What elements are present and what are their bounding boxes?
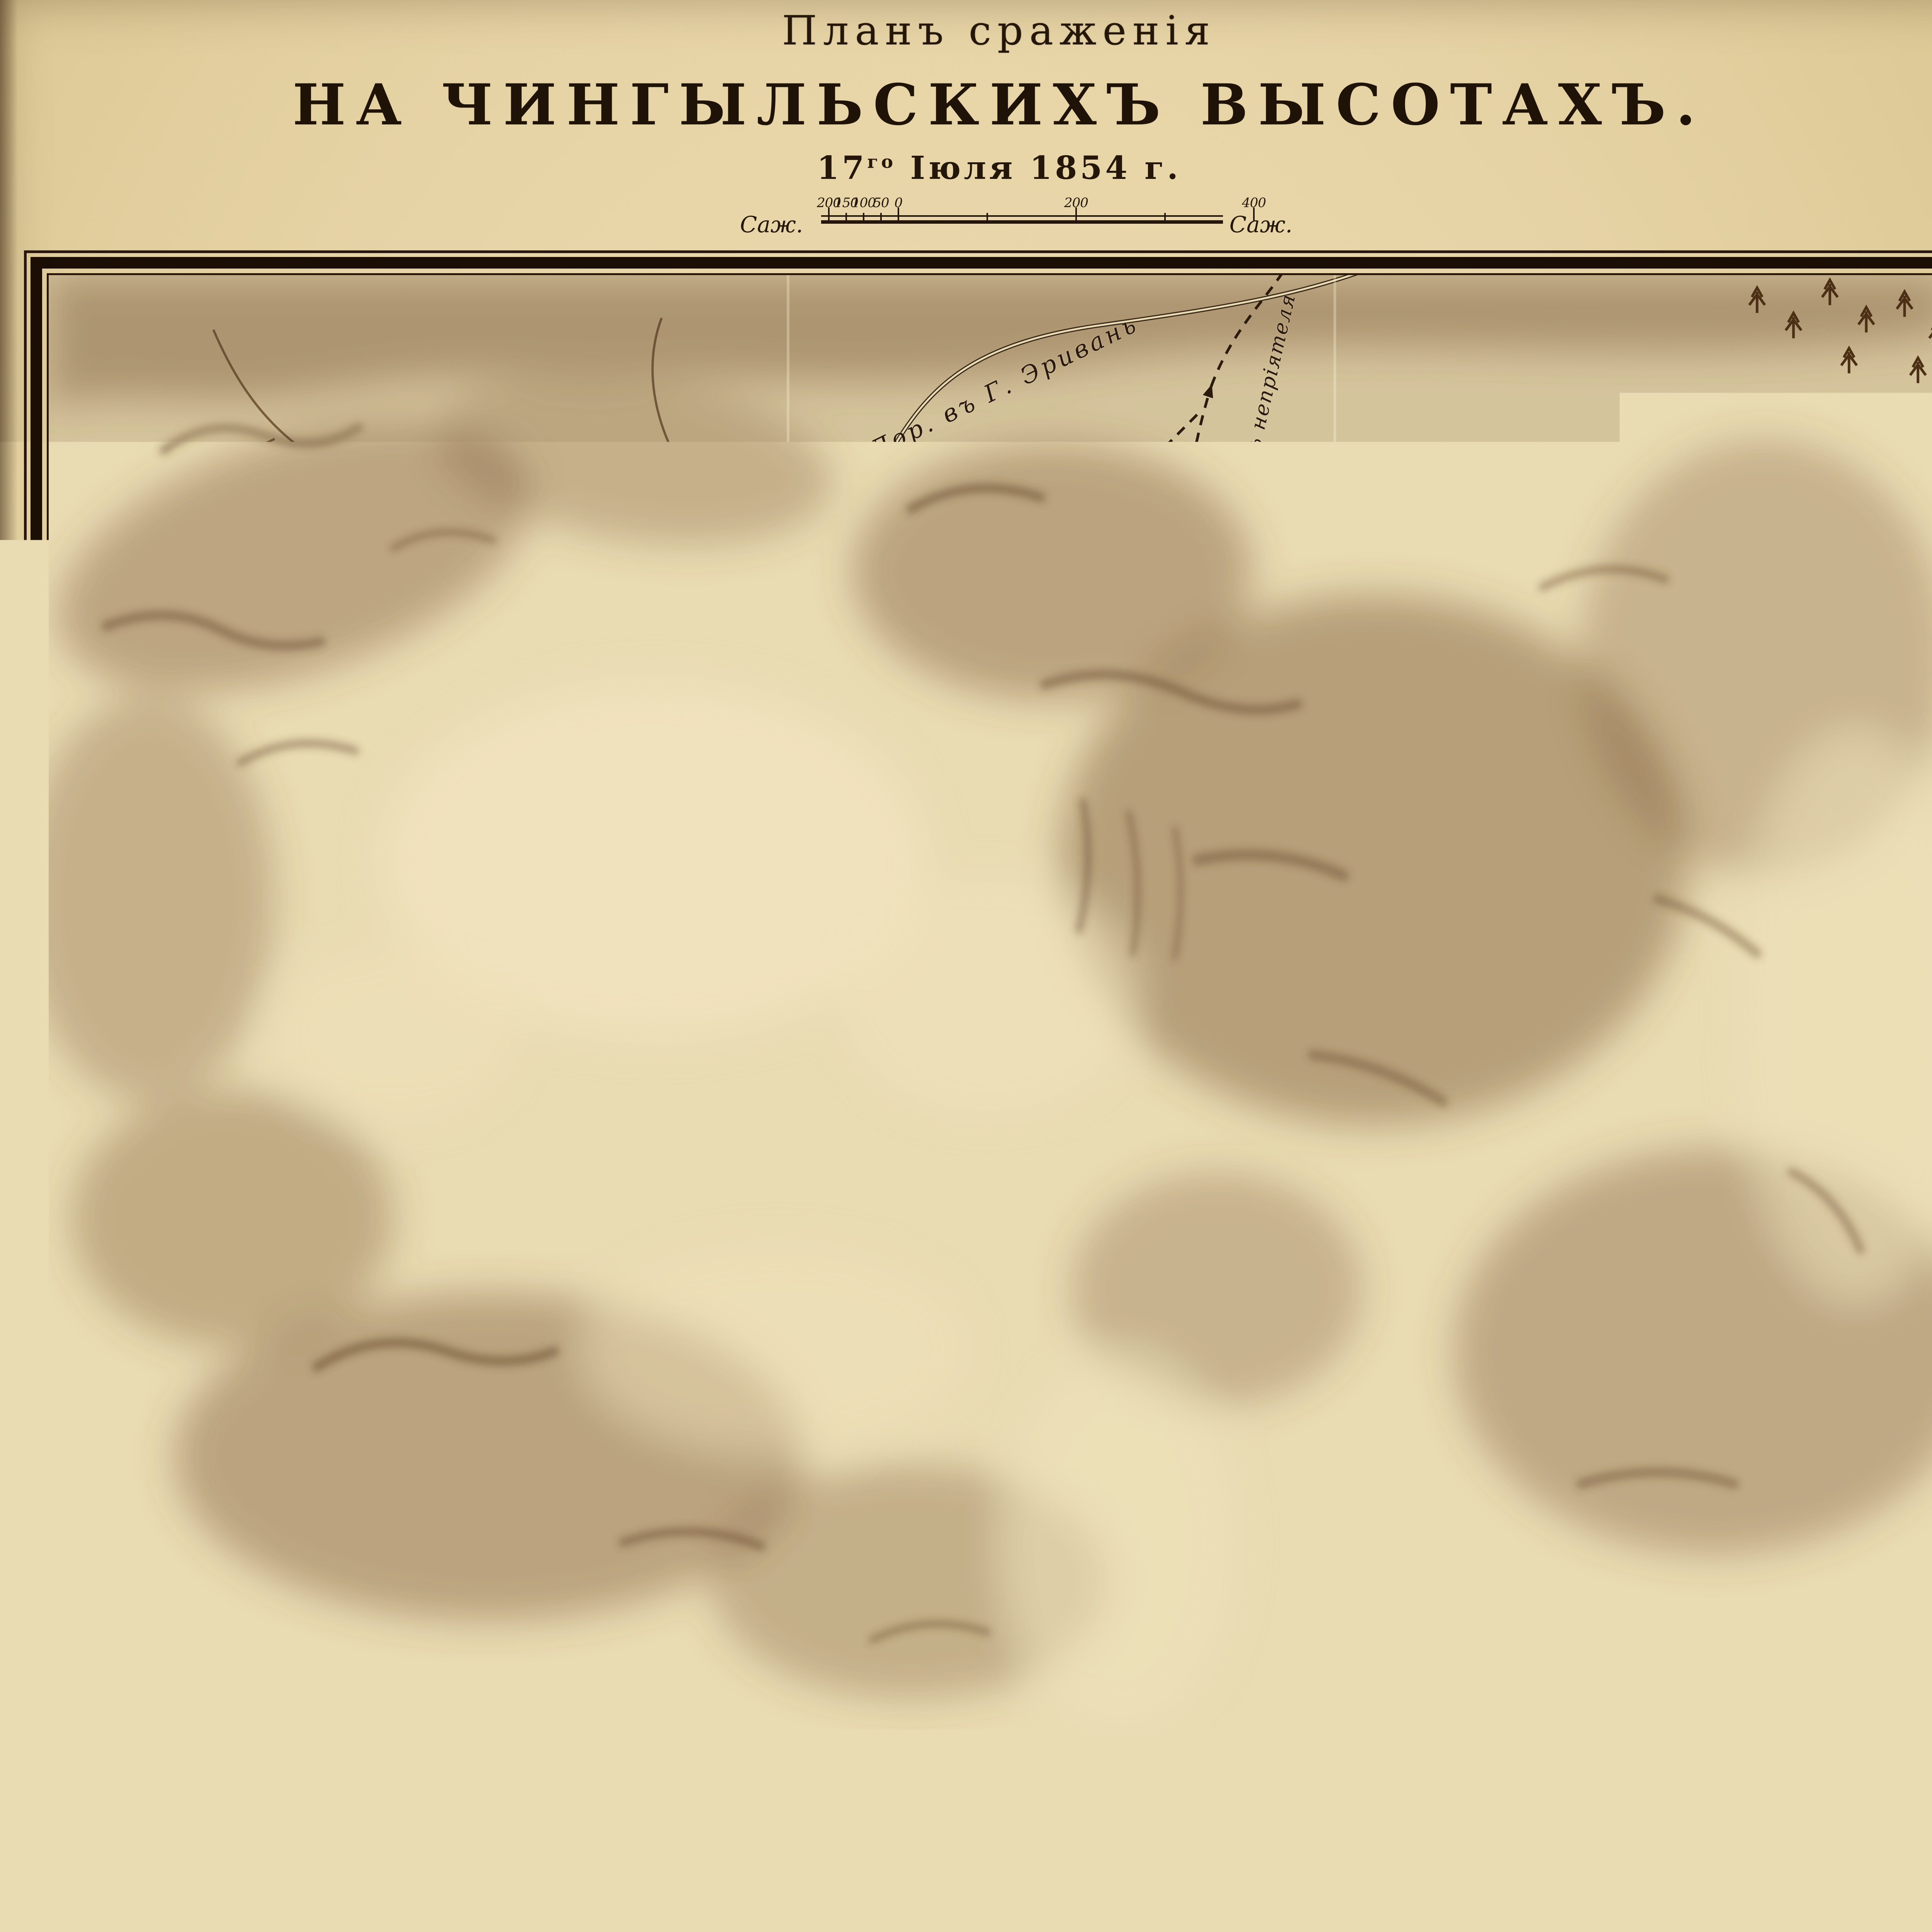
militia-dot	[707, 1168, 716, 1177]
legend-num: № 3	[572, 1886, 630, 1911]
militia-dot	[579, 1140, 588, 1149]
scale-unit-left: Саж.	[740, 211, 803, 238]
militia-dot	[857, 745, 864, 752]
militia-dot	[484, 1160, 492, 1167]
militia-dot	[847, 755, 855, 763]
militia-dot	[1348, 1921, 1357, 1929]
legend-dash	[1197, 1929, 1319, 1931]
militia-dot	[1361, 1929, 1368, 1932]
militia-dot	[504, 1162, 515, 1172]
militia-dot	[615, 1093, 623, 1100]
militia-dot	[733, 1113, 740, 1120]
militia-dot	[584, 1115, 590, 1121]
scale-tick	[863, 213, 864, 221]
militia-dot	[781, 797, 788, 803]
militia-dot	[883, 798, 887, 803]
militia-dot	[825, 812, 831, 817]
militia-dot	[655, 1179, 663, 1187]
scale-tick	[898, 207, 899, 221]
militia-dot	[1373, 1925, 1382, 1932]
militia-dot	[574, 1184, 582, 1192]
militia-dot	[872, 759, 878, 764]
militia-dot	[841, 878, 849, 885]
militia-dot	[500, 1189, 505, 1194]
militia-dot	[860, 737, 866, 743]
militia-dot	[829, 761, 839, 771]
militia-dot	[797, 1019, 802, 1023]
militia-dot	[755, 934, 764, 942]
militia-dot	[1376, 1905, 1383, 1912]
militia-dot	[770, 803, 780, 811]
militia-dot	[536, 1116, 547, 1125]
militia-dot	[488, 1175, 498, 1184]
militia-dot	[1356, 1917, 1366, 1926]
scale-tick	[1164, 213, 1166, 221]
scale-tick	[845, 213, 847, 221]
legend-dash	[876, 1929, 998, 1931]
militia-dot	[545, 1132, 556, 1141]
militia-dot	[724, 1119, 731, 1126]
militia-dot	[908, 773, 915, 780]
militia-dot	[1343, 1912, 1352, 1921]
militia-dot	[560, 1107, 568, 1114]
scale-unit-right: Саж.	[1230, 211, 1293, 238]
legend-regiment: Батал. Пѣхотн. Его Свѣтл. Кн. Варш. пол.	[925, 1825, 1347, 1845]
militia-dot	[741, 1107, 749, 1115]
militia-dot	[608, 1113, 618, 1122]
militia-dot	[776, 995, 782, 1001]
militia-dot	[896, 772, 900, 777]
militia-dot	[858, 789, 867, 798]
militia-dot	[477, 1134, 486, 1143]
militia-dot	[899, 787, 903, 791]
map-date: 17го Іюля 1854 г.	[0, 150, 1932, 187]
legend-dash	[1266, 1866, 1319, 1868]
militia-dot	[619, 1190, 624, 1195]
militia-dot	[890, 743, 898, 750]
militia-dot	[831, 929, 838, 937]
militia-dot	[1396, 1914, 1407, 1924]
militia-dot	[700, 1151, 710, 1160]
legend-regiment: Мингр. егерскаго полка	[1035, 1856, 1260, 1877]
militia-dot	[621, 1074, 628, 1080]
militia-dot	[892, 766, 900, 773]
scale-tick	[986, 213, 988, 221]
militia-dot	[1366, 1918, 1373, 1925]
legend-dash	[957, 1898, 1076, 1900]
legend-unit: милиція	[1426, 1918, 1592, 1932]
legend-name: Наступленіе	[630, 1855, 869, 1878]
militia-dot	[615, 1133, 623, 1140]
militia-dot	[571, 1164, 582, 1174]
militia-dot	[609, 1180, 613, 1185]
date-rest: Іюля 1854 г.	[910, 150, 1181, 187]
militia-dot	[769, 793, 779, 802]
legend-letter: b. 1й	[935, 1855, 979, 1878]
militia-dot	[568, 1198, 579, 1208]
militia-dot	[499, 1102, 509, 1111]
militia-dot	[837, 809, 847, 818]
militia-dot	[625, 1170, 633, 1177]
militia-dot	[901, 747, 909, 754]
militia-dot	[833, 841, 844, 851]
legend: Изъясненіе № 1 Мѣсто отдыха a. 1й Батал.…	[0, 1762, 1932, 1932]
militia-dot	[885, 801, 895, 810]
legend-letter: c. 5й	[1082, 1887, 1124, 1910]
militia-dot	[587, 1160, 592, 1165]
militia-dot	[773, 1005, 781, 1012]
legend-dash	[876, 1866, 929, 1868]
militia-dot	[594, 1194, 601, 1201]
militia-dot	[806, 771, 813, 777]
militia-dot	[561, 1167, 568, 1173]
map-area: Дор. въ Г. ЭриваньПуть слѣдованія кавале…	[47, 273, 1932, 1731]
militia-dot	[599, 1124, 606, 1131]
legend-dash	[1186, 1898, 1305, 1900]
map-frame: Дор. въ Г. ЭриваньПуть слѣдованія кавале…	[24, 250, 1932, 1754]
militia-dot	[679, 1185, 686, 1191]
scale-tick-label: 50	[873, 195, 889, 211]
legend-letter: a. 1й	[882, 1824, 925, 1846]
legend-num: № 2	[572, 1854, 630, 1879]
militia-dot	[805, 825, 812, 832]
militia-dot	[879, 742, 888, 751]
militia-dot	[779, 983, 789, 992]
militia-dot	[825, 857, 833, 864]
militia-dot	[864, 786, 869, 791]
legend-row-3: № 3 Атака центра непріятельск. c. 5й Тур…	[572, 1883, 1592, 1913]
militia-dot	[613, 1106, 621, 1114]
date-day: 17	[817, 150, 867, 187]
militia-dot	[492, 1122, 499, 1129]
militia-dot	[538, 1163, 548, 1172]
militia-dot	[567, 1100, 577, 1110]
militia-dot	[604, 1198, 608, 1202]
map-title: Планъ сраженія	[0, 7, 1932, 54]
militia-dot	[561, 1195, 568, 1201]
legend-unit: Турецк. пѣхота	[1412, 1886, 1592, 1911]
militia-dot	[766, 944, 772, 950]
scale-bar: Саж. 200150100500200400 Саж.	[740, 195, 1293, 249]
militia-dot	[718, 1156, 727, 1163]
militia-crowd-icon	[1329, 1893, 1422, 1932]
legend-row-1: № 1 Мѣсто отдыха a. 1й Батал. Пѣхотн. Ег…	[572, 1820, 1592, 1850]
militia-dot	[626, 1130, 633, 1137]
militia-dot	[831, 832, 840, 840]
militia-dot	[557, 1151, 567, 1161]
militia-dot	[597, 1176, 603, 1182]
militia-dot	[860, 808, 865, 813]
militia-dot	[768, 779, 775, 785]
date-superscript: го	[867, 151, 896, 172]
legend-regiment: Тифлиск.	[1104, 1920, 1190, 1932]
militia-dot	[907, 764, 915, 772]
militia-dot	[810, 811, 818, 818]
militia-dot	[533, 1171, 540, 1178]
militia-dot	[530, 1113, 536, 1119]
legend-row-4: № 4 Атака горъ 2 линіею д. 5й Тифлиск. м…	[572, 1915, 1592, 1932]
militia-dot	[881, 782, 891, 792]
militia-dot	[687, 1070, 697, 1080]
militia-dot	[770, 920, 780, 929]
militia-dot	[830, 903, 837, 910]
militia-dot	[635, 1131, 642, 1138]
militia-dot	[517, 1126, 521, 1130]
legend-unit: Донскіе казаки	[1460, 1823, 1628, 1847]
militia-dot	[867, 738, 876, 746]
militia-dot	[817, 755, 825, 763]
militia-dot	[512, 1093, 522, 1102]
militia-dot	[483, 1173, 488, 1177]
cossacks-icon	[1379, 1820, 1441, 1850]
militia-dot	[765, 992, 773, 999]
map-subtitle: НА ЧИНГЫЛЬСКИХЪ ВЫСОТАХЪ.	[0, 72, 1932, 138]
militia-dot	[592, 1170, 599, 1176]
legend-row-2: № 2 Наступленіе b. 1й Мингр. егерскаго п…	[572, 1852, 1592, 1882]
militia-dot	[591, 1100, 598, 1107]
militia-dot	[579, 1122, 587, 1130]
militia-dot	[1350, 1908, 1357, 1913]
militia-dot	[885, 753, 895, 763]
militia-dot	[507, 1120, 517, 1129]
scale-tick	[1075, 207, 1077, 221]
legend-unit: Милиція	[1426, 1855, 1592, 1879]
militia-dot	[731, 1135, 741, 1145]
militia-dot	[565, 1082, 573, 1089]
militia-dot	[540, 1177, 549, 1185]
militia-dot	[520, 1164, 528, 1170]
legend-dash	[1053, 1929, 1100, 1931]
militia-dot	[867, 779, 875, 786]
scale-ruler: 200150100500200400	[806, 195, 1235, 241]
terrain-drawing	[49, 275, 1932, 1730]
legend-name: Атака центра непріятельск.	[630, 1887, 951, 1910]
militia-dot	[867, 749, 873, 755]
militia-dot	[646, 1110, 656, 1119]
militia-dot	[625, 1087, 632, 1093]
legend-num: № 1	[572, 1822, 630, 1848]
militia-dot	[497, 1177, 505, 1185]
map-frame-inner: Дор. въ Г. ЭриваньПуть слѣдованія кавале…	[31, 257, 1932, 1748]
militia-dot	[532, 1092, 541, 1100]
militia-dot	[877, 759, 884, 765]
militia-dot	[583, 1095, 591, 1103]
scale-tick	[828, 207, 830, 221]
militia-dot	[566, 1154, 575, 1162]
militia-dot	[787, 938, 798, 948]
militia-dot	[1391, 1919, 1398, 1926]
militia-dot	[611, 1187, 617, 1192]
militia-dot	[602, 1172, 611, 1181]
militia-dot	[788, 825, 799, 835]
militia-dot	[1364, 1904, 1373, 1912]
militia-dot	[835, 914, 845, 923]
militia-dot	[800, 830, 806, 837]
militia-dot	[505, 1182, 512, 1189]
legend-name: Атака горъ 2 линіею	[630, 1918, 869, 1932]
militia-dot	[689, 1175, 697, 1184]
militia-dot	[840, 740, 847, 747]
militia-dot	[550, 1196, 558, 1202]
militia-dot	[773, 812, 783, 821]
title-block: Планъ сраженія НА ЧИНГЫЛЬСКИХЪ ВЫСОТАХЪ.…	[0, 0, 1932, 187]
militia-dot	[837, 900, 844, 906]
militia-dot	[847, 766, 855, 774]
militia-dot	[779, 776, 787, 784]
legend-name: Мѣсто отдыха	[630, 1823, 869, 1847]
legend-dash	[1129, 1898, 1175, 1900]
legend-num: № 4	[572, 1917, 630, 1932]
militia-dot	[822, 788, 832, 797]
legend-letter: д. 5й	[1004, 1919, 1049, 1932]
militia-dot	[532, 1145, 542, 1153]
scale-tick-label: 100	[852, 195, 876, 211]
militia-dot	[580, 1198, 585, 1202]
map-sheet: Планъ сраженія НА ЧИНГЫЛЬСКИХЪ ВЫСОТАХЪ.…	[0, 0, 1932, 1932]
militia-dot	[636, 1070, 645, 1078]
militia-dot	[856, 754, 864, 762]
militia-dot	[1359, 1905, 1365, 1911]
militia-dot	[805, 985, 814, 993]
militia-dot	[531, 1186, 539, 1194]
legend-title: Изъясненіе	[0, 1762, 1932, 1805]
militia-dot	[1342, 1928, 1351, 1932]
militia-dot	[597, 1158, 605, 1166]
militia-dot	[795, 989, 802, 995]
legend-dash	[984, 1866, 1030, 1868]
scale-tick	[880, 213, 882, 221]
